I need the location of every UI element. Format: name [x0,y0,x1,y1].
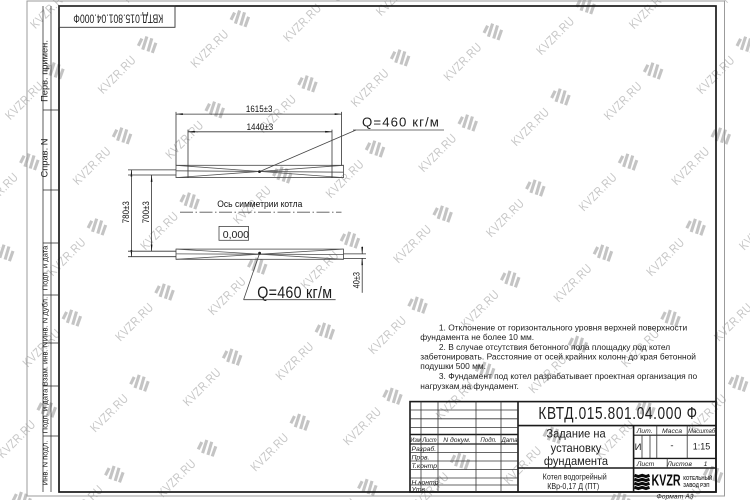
svg-text:Лист: Лист [636,461,655,468]
svg-text:N докум.: N докум. [443,436,471,444]
svg-text:1. Отклонение от горизонтально: 1. Отклонение от горизонтального уровня … [439,322,688,332]
svg-text:KVZR.RU: KVZR.RU [627,0,670,32]
svg-text:KVZR.RU: KVZR.RU [552,262,595,305]
svg-text:KVZR.RU: KVZR.RU [442,41,485,84]
svg-text:KVZR.RU: KVZR.RU [737,210,750,253]
svg-text:KVZR.RU: KVZR.RU [349,67,392,110]
svg-text:нагрузкам на фундамент.: нагрузкам на фундамент. [420,381,519,391]
svg-text:Подп. и дата: Подп. и дата [40,388,49,434]
svg-text:Справ. N: Справ. N [39,139,49,178]
svg-text:Подп.: Подп. [480,436,496,444]
svg-text:KVZR.RU: KVZR.RU [417,132,460,175]
svg-text:Масса: Масса [662,428,682,435]
svg-text:KVZR.RU: KVZR.RU [712,301,750,344]
svg-text:KVZR.RU: KVZR.RU [577,171,620,214]
svg-text:Изм: Изм [410,437,421,445]
svg-text:KVZR.RU: KVZR.RU [509,106,552,149]
svg-text:KVZR.RU: KVZR.RU [392,223,435,266]
svg-text:KVZR.RU: KVZR.RU [206,275,249,318]
svg-text:KVZR.RU: KVZR.RU [374,0,417,19]
svg-text:Масштаб: Масштаб [688,427,715,436]
svg-text:КВТД.015.801.04.000 Ф: КВТД.015.801.04.000 Ф [538,405,697,424]
svg-text:40±3: 40±3 [350,272,361,289]
svg-text:KVZR.RU: KVZR.RU [502,444,545,487]
svg-text:KVZR.RU: KVZR.RU [341,405,384,448]
svg-text:забетонировать. Расстояние от: забетонировать. Расстояние от осей крайн… [420,352,696,362]
svg-text:ЗАВОД РЭП: ЗАВОД РЭП [683,483,710,489]
svg-text:700±3: 700±3 [141,201,152,223]
svg-text:Утв.: Утв. [411,486,428,493]
svg-text:Разраб.: Разраб. [412,445,437,453]
svg-text:KVZR.RU: KVZR.RU [484,197,527,240]
svg-text:KVZR.RU: KVZR.RU [181,366,224,409]
svg-text:КОТЕЛЬНЫЙ: КОТЕЛЬНЫЙ [683,474,712,483]
svg-text:Котел водогрейный: Котел водогрейный [543,472,607,482]
svg-text:KVZR.RU: KVZR.RU [96,54,139,97]
svg-text:установку: установку [551,441,602,455]
svg-text:KVZR.RU: KVZR.RU [274,340,317,383]
svg-text:KVZR.RU: KVZR.RU [46,236,89,279]
svg-text:KVZR: KVZR [652,472,681,489]
svg-text:3. Фундамент под котел разраба: 3. Фундамент под котел разрабатывает про… [439,371,698,381]
svg-text:Н.контр: Н.контр [412,479,439,486]
svg-text:780±3: 780±3 [120,201,131,223]
svg-text:1440±3: 1440±3 [247,122,274,133]
svg-text:Инв. N подл.: Инв. N подл. [40,441,49,486]
svg-text:KVZR.RU: KVZR.RU [249,431,292,474]
svg-text:KVZR.RU: KVZR.RU [156,457,199,500]
svg-text:KVZR.RU: KVZR.RU [534,15,577,58]
svg-text:Лит.: Лит. [636,428,653,435]
svg-text:фундамента: фундамента [544,455,609,469]
svg-text:KVZR.RU: KVZR.RU [189,28,232,71]
svg-text:КВр-0,17 Д (ПТ): КВр-0,17 Д (ПТ) [547,481,599,491]
svg-text:Т.контр: Т.контр [412,463,438,470]
svg-text:Формат А3: Формат А3 [656,494,693,500]
svg-text:Лист: Лист [421,437,436,445]
svg-text:KVZR.RU: KVZR.RU [670,145,713,188]
svg-text:KVZR.RU: KVZR.RU [316,496,359,500]
svg-text:KVZR.RU: KVZR.RU [366,314,409,357]
svg-text:Дата: Дата [500,437,517,444]
svg-text:фундамента не более 10 мм.: фундамента не более 10 мм. [420,332,534,342]
svg-text:Перв. примен.: Перв. примен. [39,40,49,102]
svg-text:Ось симметрии котла: Ось симметрии котла [217,199,302,209]
svg-text:KVZR.RU: KVZR.RU [0,418,39,461]
svg-text:-: - [670,441,673,452]
svg-text:1: 1 [704,461,708,468]
svg-text:Пров.: Пров. [412,454,430,461]
svg-text:KVZR.RU: KVZR.RU [88,392,131,435]
svg-text:1:15: 1:15 [693,442,711,452]
svg-text:KVZR.RU: KVZR.RU [0,171,21,214]
svg-text:Инв. N дубл.: Инв. N дубл. [40,297,49,341]
svg-text:KVZR.RU: KVZR.RU [324,158,367,201]
svg-text:2. В случае отсутствия бетонно: 2. В случае отсутствия бетонного пола пл… [439,342,670,352]
svg-text:KVZR.RU: KVZR.RU [645,236,688,279]
svg-text:0,000: 0,000 [223,229,249,241]
svg-text:Взам. инв. N: Взам. инв. N [40,342,49,386]
svg-text:Задание на: Задание на [546,427,606,441]
svg-text:KVZR.RU: KVZR.RU [602,80,645,123]
svg-text:Q=460 кг/м: Q=460 кг/м [362,114,440,129]
svg-text:Листов: Листов [666,461,692,468]
svg-text:Подп. и дата: Подп. и дата [40,245,49,291]
svg-text:KVZR.RU: KVZR.RU [113,301,156,344]
svg-text:KVZR.RU: KVZR.RU [164,119,207,162]
svg-text:подушки 500 мм.: подушки 500 мм. [420,361,486,371]
svg-text:KVZR.RU: KVZR.RU [281,2,324,45]
svg-text:1615±3: 1615±3 [246,103,273,114]
svg-text:КВТД.015.801.04.000Ф: КВТД.015.801.04.000Ф [73,11,163,23]
svg-text:KVZR.RU: KVZR.RU [71,145,114,188]
svg-text:И: И [635,442,642,453]
